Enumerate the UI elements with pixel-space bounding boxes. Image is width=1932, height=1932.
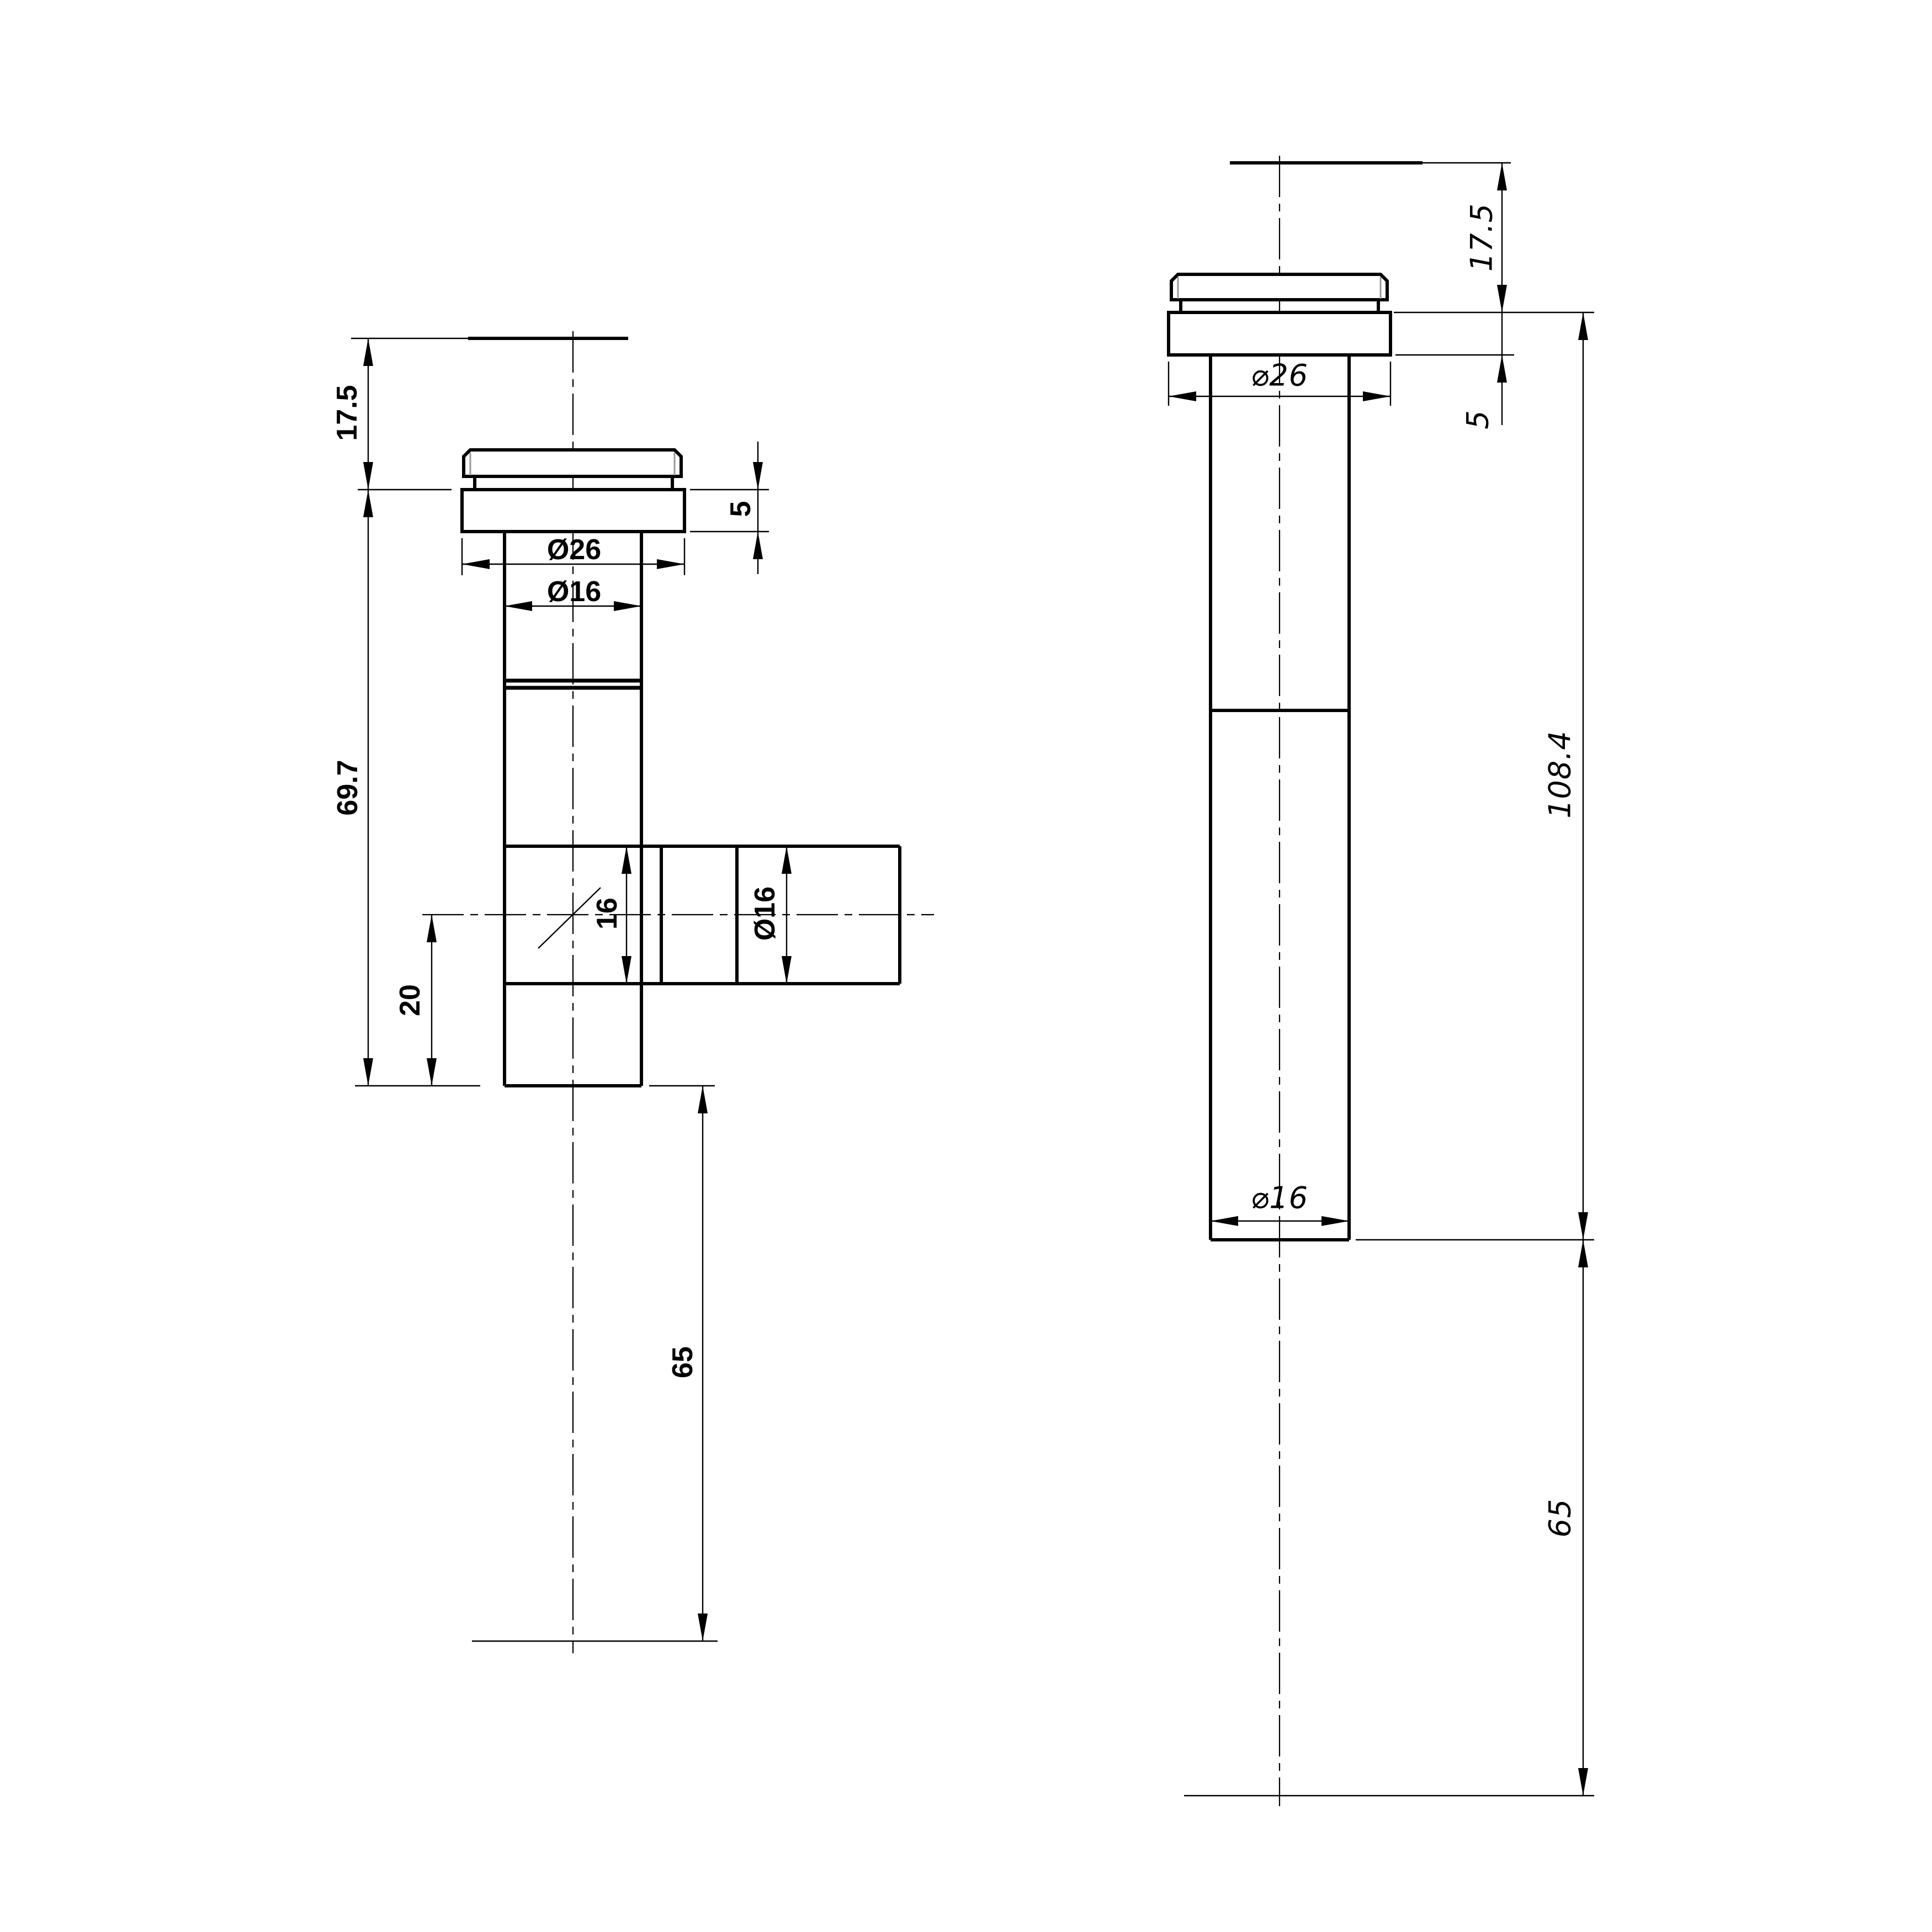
right-flange-outline — [1169, 312, 1390, 355]
arrowhead — [782, 956, 792, 984]
left-flange-outline — [462, 490, 684, 532]
dim-label-cap-height: 17.5 — [1464, 203, 1499, 272]
arrowhead — [363, 490, 373, 517]
arrowhead — [427, 915, 437, 942]
arrowhead — [1497, 163, 1507, 190]
dim-label-cap-height: 17.5 — [331, 385, 363, 440]
arrowhead — [1578, 312, 1588, 340]
dim-label-flange-thickness: 5 — [725, 501, 757, 517]
arrowhead — [698, 1613, 708, 1641]
dim-label-tube-diameter: ⌀16 — [1251, 1181, 1308, 1216]
arrowhead — [753, 462, 763, 490]
dim-label-body-length: 69.7 — [332, 760, 364, 815]
left-view: 17.5 69.7 20 5 Ø26 Ø16 16 — [331, 331, 934, 1653]
arrowhead — [1578, 1768, 1588, 1796]
arrowhead — [1578, 1240, 1588, 1267]
right-cap-outline — [1171, 274, 1387, 300]
arrowhead — [782, 846, 792, 874]
dim-label-branch-bore: 16 — [591, 898, 623, 930]
dim-label-flange-thickness: 5 — [1461, 410, 1495, 429]
dim-label-tube-diameter: Ø16 — [547, 576, 601, 608]
arrowhead — [1321, 1216, 1349, 1226]
arrowhead — [427, 1058, 437, 1086]
dim-label-branch-diameter: Ø16 — [749, 887, 781, 941]
arrowhead — [614, 601, 641, 611]
arrowhead — [622, 846, 631, 874]
arrowhead — [363, 462, 373, 490]
arrowhead — [753, 532, 763, 559]
arrowhead — [1363, 391, 1390, 401]
arrowhead — [363, 338, 373, 366]
arrowhead — [462, 559, 490, 569]
arrowhead — [1169, 391, 1196, 401]
drawing-page: 17.5 69.7 20 5 Ø26 Ø16 16 — [0, 0, 1932, 1932]
arrowhead — [505, 601, 532, 611]
arrowhead — [657, 559, 684, 569]
arrowhead — [698, 1086, 708, 1113]
dim-label-stem-length: 65 — [667, 1346, 699, 1378]
dim-label-flange-diameter: Ø26 — [547, 534, 601, 566]
left-cap-outline — [464, 450, 681, 476]
engineering-drawing-canvas: 17.5 69.7 20 5 Ø26 Ø16 16 — [0, 0, 1932, 1932]
right-view: 17.5 5 ⌀26 ⌀16 108.4 65 — [1169, 156, 1594, 1806]
arrowhead — [1497, 285, 1507, 312]
dim-label-stem-length: 65 — [1543, 1499, 1578, 1538]
arrowhead — [1578, 1212, 1588, 1240]
arrowhead — [622, 956, 631, 984]
dim-label-flange-diameter: ⌀26 — [1251, 358, 1308, 393]
dim-label-branch-offset: 20 — [394, 984, 426, 1016]
dim-label-total-length: 108.4 — [1543, 730, 1578, 819]
arrowhead — [1497, 355, 1507, 383]
arrowhead — [363, 1058, 373, 1086]
arrowhead — [1211, 1216, 1238, 1226]
